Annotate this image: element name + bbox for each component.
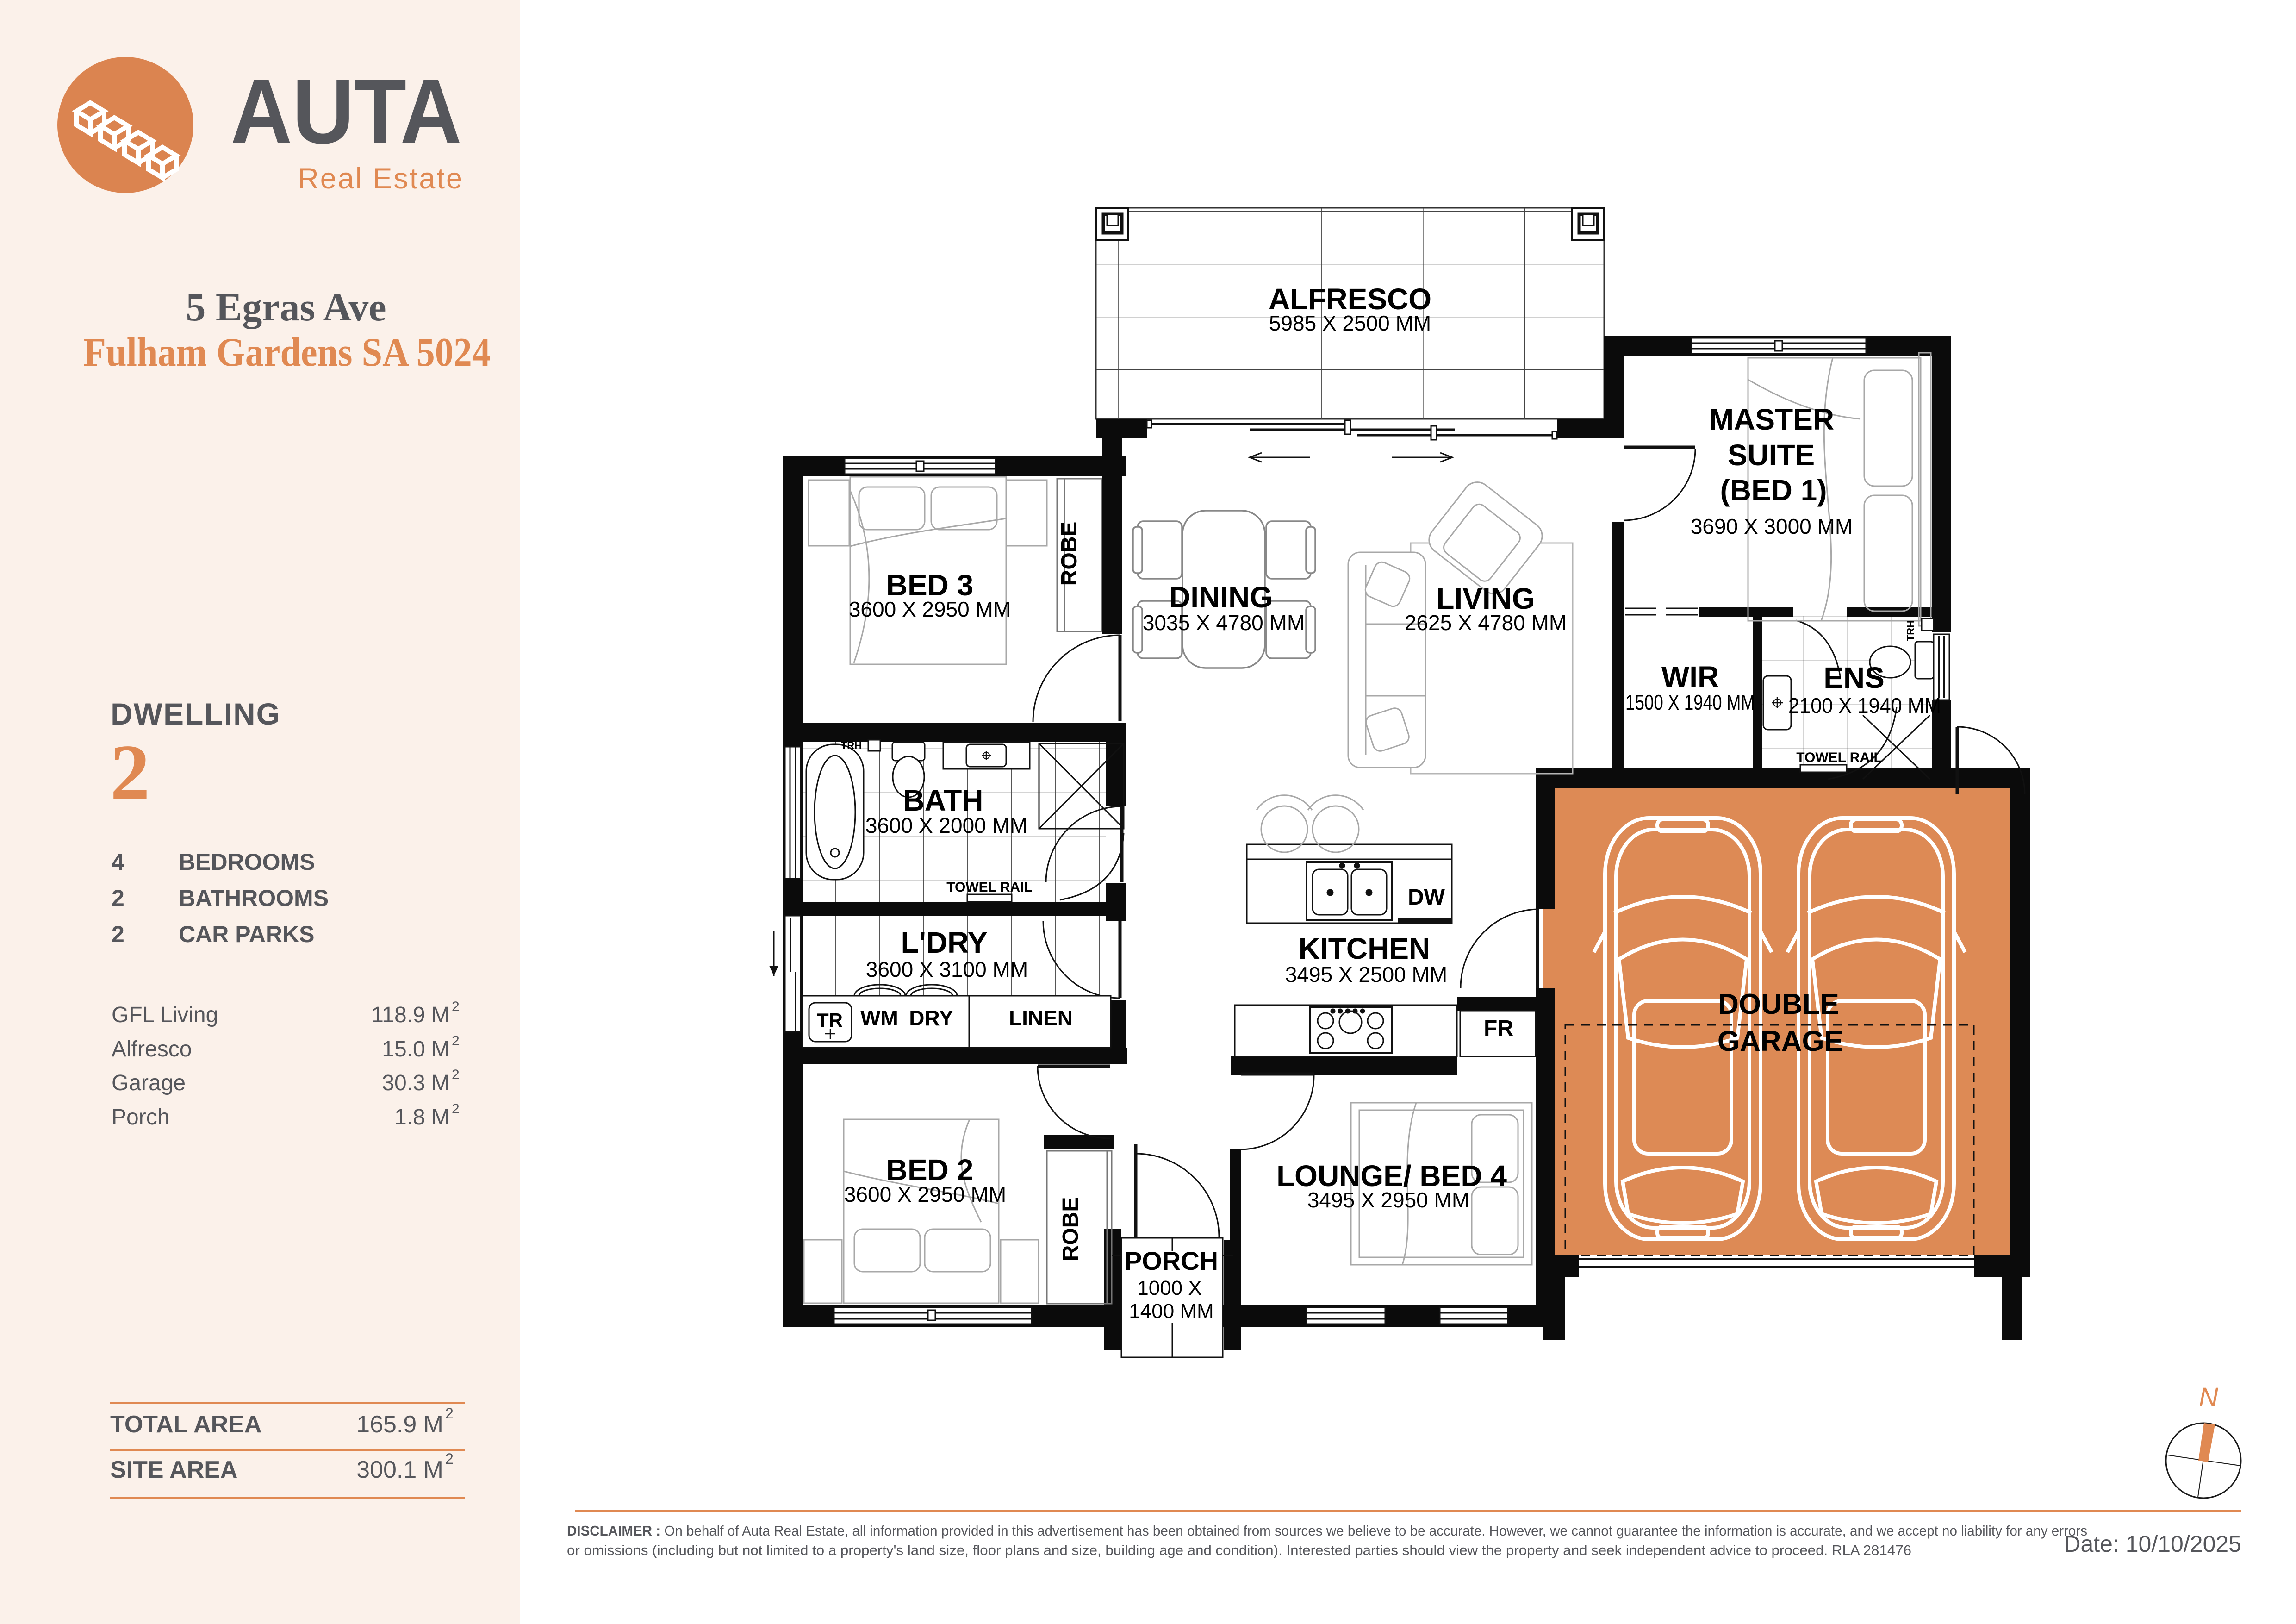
svg-text:KITCHEN: KITCHEN [1299, 932, 1430, 965]
svg-text:FR: FR [1484, 1016, 1513, 1041]
svg-text:3600 X 3100 MM: 3600 X 3100 MM [866, 957, 1028, 981]
svg-text:Date: 10/10/2025: Date: 10/10/2025 [2064, 1531, 2241, 1557]
svg-text:WIR: WIR [1661, 660, 1719, 693]
svg-text:N: N [2199, 1382, 2218, 1412]
svg-text:3600 X 2000 MM: 3600 X 2000 MM [865, 813, 1027, 837]
svg-text:DISCLAIMER : On behalf of Auta: DISCLAIMER : On behalf of Auta Real Esta… [567, 1523, 2087, 1539]
svg-text:TRH: TRH [841, 740, 862, 751]
svg-text:5 Egras Ave: 5 Egras Ave [186, 285, 386, 329]
svg-text:4: 4 [112, 849, 124, 875]
svg-text:TR: TR [817, 1009, 843, 1031]
svg-text:3495 X 2950 MM: 3495 X 2950 MM [1307, 1188, 1469, 1212]
svg-text:TOWEL RAIL: TOWEL RAIL [946, 880, 1033, 895]
svg-text:WM: WM [860, 1006, 898, 1030]
svg-text:ROBE: ROBE [1058, 1197, 1083, 1262]
svg-text:2: 2 [110, 729, 150, 817]
svg-text:DRY: DRY [909, 1006, 953, 1030]
svg-text:1400 MM: 1400 MM [1129, 1300, 1213, 1323]
svg-text:Garage: Garage [112, 1071, 186, 1095]
svg-text:BEDROOMS: BEDROOMS [179, 849, 315, 875]
svg-text:TOTAL AREA: TOTAL AREA [110, 1411, 261, 1438]
svg-text:CAR PARKS: CAR PARKS [179, 921, 315, 947]
svg-text:Fulham Gardens SA 5024: Fulham Gardens SA 5024 [83, 330, 491, 375]
svg-text:2: 2 [452, 1033, 460, 1049]
svg-text:BED 2: BED 2 [886, 1153, 974, 1187]
svg-text:2: 2 [452, 1101, 460, 1117]
svg-text:or omissions (including but no: or omissions (including but not limited … [567, 1542, 1911, 1558]
svg-text:Real Estate: Real Estate [298, 162, 464, 195]
svg-text:3690 X 3000 MM: 3690 X 3000 MM [1691, 514, 1853, 538]
svg-text:BATHROOMS: BATHROOMS [179, 885, 329, 911]
svg-text:2: 2 [445, 1405, 454, 1422]
svg-text:3495 X 2500 MM: 3495 X 2500 MM [1285, 962, 1447, 987]
svg-text:ROBE: ROBE [1057, 522, 1082, 586]
svg-text:TOWEL RAIL: TOWEL RAIL [1796, 750, 1882, 765]
svg-text:165.9 M: 165.9 M [356, 1411, 443, 1438]
svg-text:ENS: ENS [1823, 661, 1885, 694]
svg-text:(BED 1): (BED 1) [1720, 474, 1827, 507]
svg-text:15.0 M: 15.0 M [382, 1037, 450, 1062]
svg-text:DOUBLE: DOUBLE [1718, 988, 1839, 1020]
svg-text:30.3 M: 30.3 M [382, 1071, 450, 1095]
svg-text:BATH: BATH [903, 784, 983, 817]
svg-text:GFL Living: GFL Living [112, 1003, 218, 1027]
svg-text:2: 2 [452, 1067, 460, 1082]
svg-text:2: 2 [452, 999, 460, 1014]
svg-text:SITE AREA: SITE AREA [110, 1456, 237, 1483]
svg-text:2: 2 [445, 1450, 454, 1467]
svg-text:3600 X 2950 MM: 3600 X 2950 MM [849, 597, 1011, 621]
svg-text:1000 X: 1000 X [1137, 1277, 1201, 1299]
svg-text:300.1 M: 300.1 M [356, 1456, 443, 1483]
svg-text:2100 X 1940 MM: 2100 X 1940 MM [1788, 693, 1941, 718]
svg-text:Porch: Porch [112, 1105, 169, 1130]
svg-text:SUITE: SUITE [1728, 438, 1815, 472]
svg-text:AUTA: AUTA [230, 60, 462, 162]
svg-text:MASTER: MASTER [1709, 403, 1834, 436]
svg-text:2: 2 [112, 885, 124, 911]
svg-text:L'DRY: L'DRY [901, 926, 987, 959]
svg-text:LINEN: LINEN [1009, 1006, 1073, 1030]
svg-text:TRH: TRH [1905, 620, 1916, 641]
svg-text:2625 X 4780 MM: 2625 X 4780 MM [1405, 611, 1567, 635]
svg-text:5985 X 2500 MM: 5985 X 2500 MM [1269, 311, 1431, 335]
svg-text:GARAGE: GARAGE [1717, 1025, 1843, 1057]
svg-text:1500 X 1940 MM: 1500 X 1940 MM [1625, 690, 1755, 714]
svg-text:PORCH: PORCH [1125, 1246, 1218, 1275]
svg-text:3035 X 4780 MM: 3035 X 4780 MM [1143, 611, 1305, 635]
svg-text:DW: DW [1408, 885, 1445, 910]
svg-text:1.8 M: 1.8 M [394, 1105, 450, 1130]
svg-text:Alfresco: Alfresco [112, 1037, 192, 1062]
svg-text:2: 2 [112, 921, 124, 947]
svg-text:3600 X 2950 MM: 3600 X 2950 MM [844, 1182, 1006, 1206]
svg-text:DWELLING: DWELLING [111, 697, 281, 731]
svg-text:118.9 M: 118.9 M [371, 1003, 450, 1027]
svg-text:DINING: DINING [1169, 581, 1273, 614]
